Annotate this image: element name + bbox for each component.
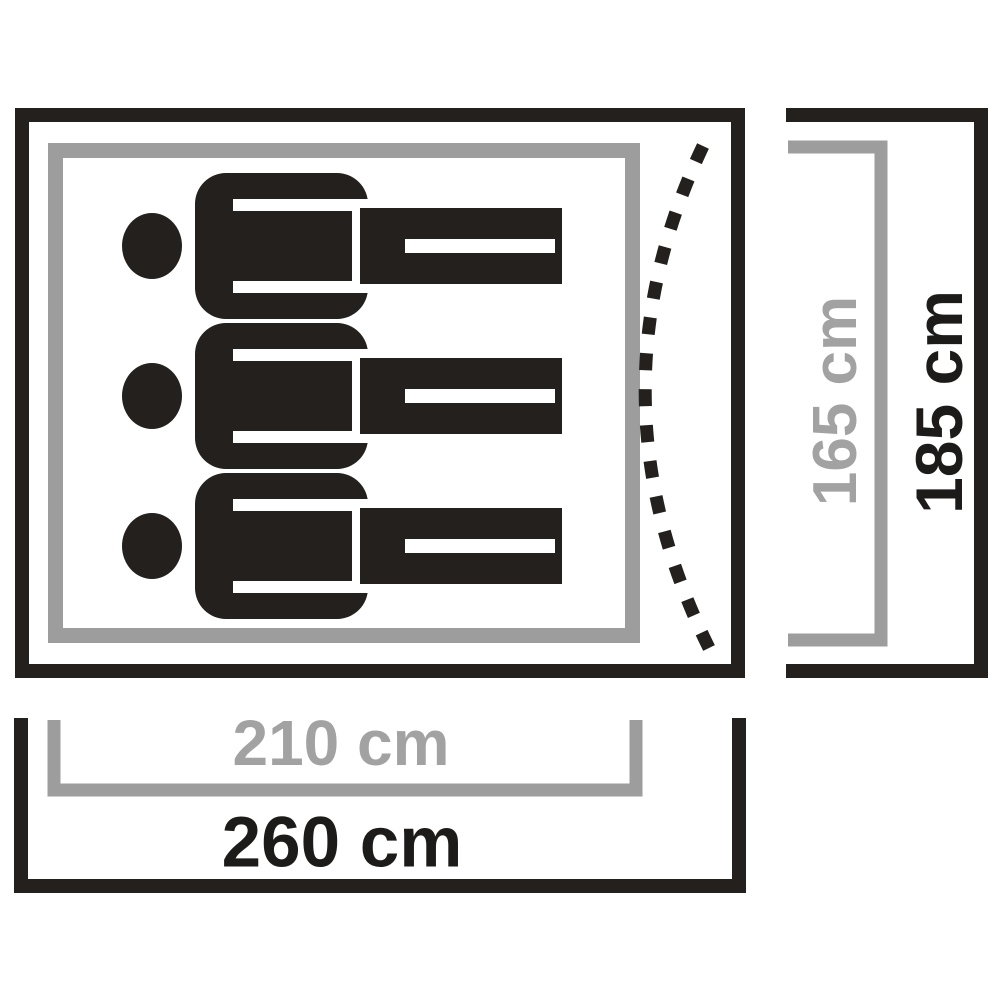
outer-width-label: 260 cm <box>222 808 463 879</box>
inner-depth-label: 165 cm <box>805 296 867 506</box>
inner-width-label: 210 cm <box>232 711 449 775</box>
tent-floorplan-diagram: 210 cm 260 cm 165 cm 185 cm <box>0 0 1000 1000</box>
person-lying-icon <box>122 323 562 469</box>
person-lying-icon <box>122 173 562 319</box>
dashed-door-curve-icon <box>645 146 710 650</box>
person-lying-icon <box>122 473 562 619</box>
sleeping-persons-group <box>122 173 562 619</box>
outer-depth-label: 185 cm <box>906 290 972 514</box>
